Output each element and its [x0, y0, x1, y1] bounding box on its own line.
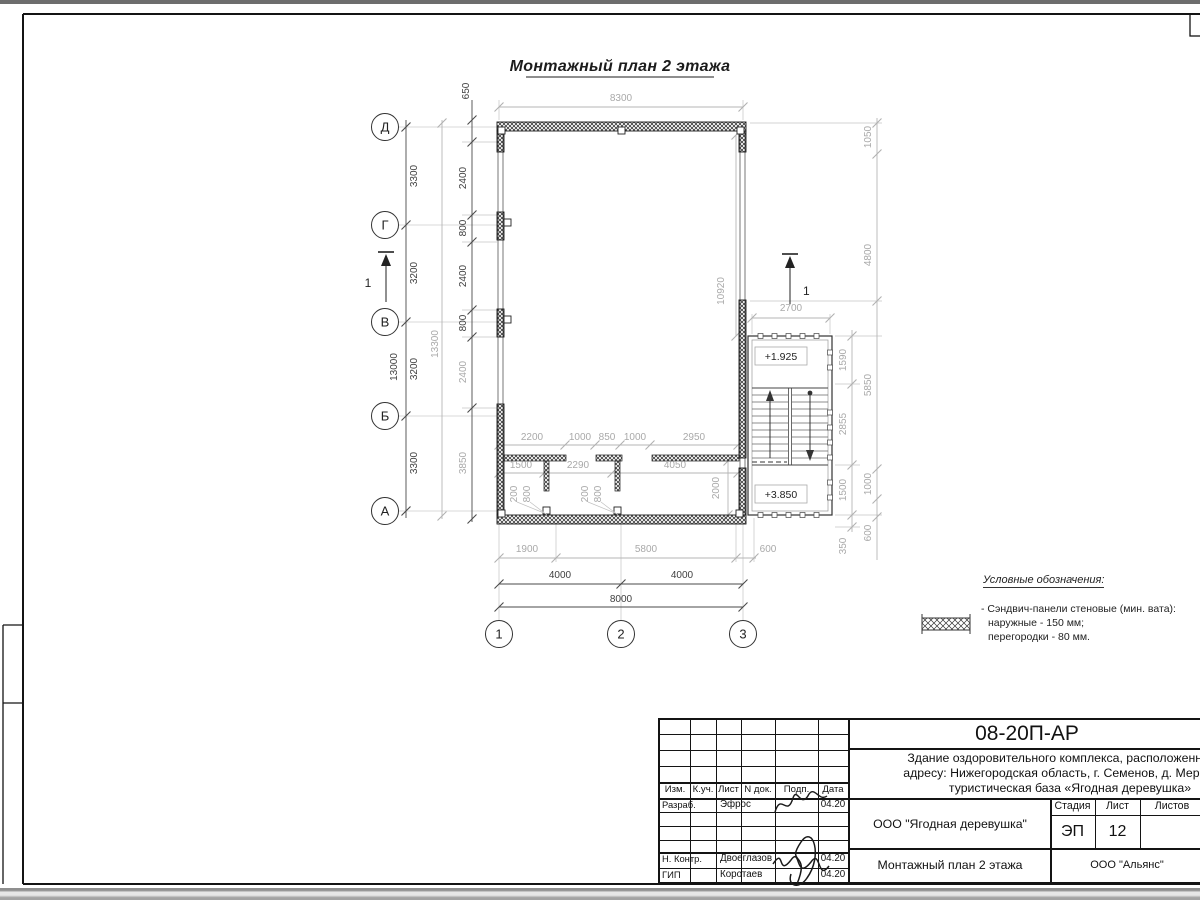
axis-label-3: 3 [739, 627, 746, 642]
svg-text:850: 850 [599, 432, 616, 443]
svg-text:2855: 2855 [838, 412, 849, 435]
svg-text:2400: 2400 [458, 166, 469, 189]
drawing-sheet: Монтажный план 2 этажа [0, 0, 1200, 900]
document-code: 08-20П-АР [850, 720, 1200, 748]
stair-up-arrow [766, 390, 774, 401]
title-block: 08-20П-АР Здание оздоровительного компле… [658, 718, 1200, 884]
sandwich-panel-swatch [919, 614, 977, 636]
elevation-upper-landing: +1.925 [765, 351, 798, 363]
project-description-line3: туристическая база «Ягодная деревушка» [850, 781, 1200, 795]
section-mark-left: 1 [365, 252, 394, 302]
svg-text:600: 600 [760, 544, 777, 555]
col-izm: Изм. [660, 782, 690, 798]
sheet-number: 12 [1095, 815, 1140, 848]
legend-line3: перегородки - 80 мм. [988, 631, 1090, 643]
project-description-line2: адресу: Нижегородская область, г. Семено… [850, 766, 1200, 780]
svg-text:1000: 1000 [624, 432, 647, 443]
plan-title: Монтажный план 2 этажа [510, 58, 731, 75]
svg-text:800: 800 [522, 485, 533, 502]
axis-lines [399, 127, 743, 620]
stair-annex: +1.925 +3.850 [748, 334, 833, 518]
dimension-lines-dark [406, 100, 743, 607]
svg-text:800: 800 [458, 314, 469, 331]
dim-10920: 10920 [716, 277, 727, 305]
signatures [765, 786, 855, 886]
stage-value: ЭП [1050, 815, 1095, 848]
svg-text:1590: 1590 [838, 348, 849, 371]
role-nkontr: Н. Контр. [662, 852, 702, 866]
svg-text:2950: 2950 [683, 432, 706, 443]
svg-text:1: 1 [803, 284, 810, 298]
svg-text:5850: 5850 [863, 373, 874, 396]
svg-text:3200: 3200 [409, 261, 420, 284]
role-razrab: Разраб. [662, 798, 696, 812]
svg-text:200: 200 [509, 485, 520, 502]
axis-label-1: 1 [495, 627, 502, 642]
dim-2700: 2700 [780, 303, 803, 314]
svg-text:1000: 1000 [863, 472, 874, 495]
outer-walls [497, 122, 746, 524]
dim-bottom-total: 8000 [610, 594, 633, 605]
col-list: Лист [716, 782, 741, 798]
legend-line1: - Сэндвич-панели стеновые (мин. вата): [981, 603, 1176, 615]
name-razrab: Эфрос [720, 798, 751, 812]
axis-label-g: Г [381, 218, 388, 233]
name-gip: Коротаев [720, 868, 762, 882]
svg-text:5800: 5800 [635, 544, 658, 555]
svg-text:3850: 3850 [458, 451, 469, 474]
dimension-lines-gray [442, 107, 877, 560]
stub-leaders [517, 502, 618, 515]
svg-text:2200: 2200 [521, 432, 544, 443]
dim-top-width: 8300 [610, 93, 633, 104]
sheet-name: Монтажный план 2 этажа [850, 848, 1050, 882]
design-company: ООО "Альянс" [1050, 848, 1200, 882]
svg-text:4050: 4050 [664, 460, 687, 471]
svg-text:800: 800 [593, 485, 604, 502]
svg-text:600: 600 [863, 524, 874, 541]
svg-text:200: 200 [580, 485, 591, 502]
sheets-label: Листов [1140, 798, 1200, 815]
svg-text:1: 1 [365, 276, 372, 290]
stair-steps [752, 395, 828, 458]
legend-line2: наружные - 150 мм; [988, 617, 1084, 629]
dimension-ticks [402, 103, 882, 612]
dim-left-total: 13000 [389, 353, 400, 381]
svg-text:2400: 2400 [458, 360, 469, 383]
role-gip: ГИП [662, 868, 681, 882]
svg-text:4000: 4000 [671, 570, 694, 581]
svg-text:1500: 1500 [838, 478, 849, 501]
section-mark-right: 1 [782, 254, 810, 304]
axis-label-b: Б [381, 409, 390, 424]
axis-label-2: 2 [617, 627, 624, 642]
svg-text:2290: 2290 [567, 460, 590, 471]
dim-left-total2: 13300 [430, 330, 441, 358]
client-name: ООО "Ягодная деревушка" [850, 800, 1050, 848]
legend-title: Условные обозначения: [983, 574, 1104, 588]
svg-text:1000: 1000 [569, 432, 592, 443]
svg-text:1050: 1050 [863, 125, 874, 148]
svg-text:800: 800 [458, 219, 469, 236]
svg-text:4000: 4000 [549, 570, 572, 581]
dim-2000: 2000 [711, 476, 722, 499]
svg-text:3200: 3200 [409, 357, 420, 380]
dim-650: 650 [461, 82, 472, 99]
svg-text:3300: 3300 [409, 451, 420, 474]
svg-text:350: 350 [838, 537, 849, 554]
axis-label-a: А [381, 504, 390, 519]
stage-label: Стадия [1050, 798, 1095, 815]
axis-label-v: В [381, 315, 390, 330]
svg-text:2400: 2400 [458, 264, 469, 287]
axis-label-d: Д [381, 120, 390, 135]
elevation-lower-landing: +3.850 [765, 489, 798, 501]
svg-text:3300: 3300 [409, 164, 420, 187]
stair-down-arrow [806, 450, 814, 461]
svg-text:1900: 1900 [516, 544, 539, 555]
col-kuch: К.уч. [690, 782, 716, 798]
svg-text:1500: 1500 [510, 460, 533, 471]
project-description-line1: Здание оздоровительного комплекса, распо… [850, 751, 1200, 765]
svg-text:4800: 4800 [863, 243, 874, 266]
sheet-label: Лист [1095, 798, 1140, 815]
